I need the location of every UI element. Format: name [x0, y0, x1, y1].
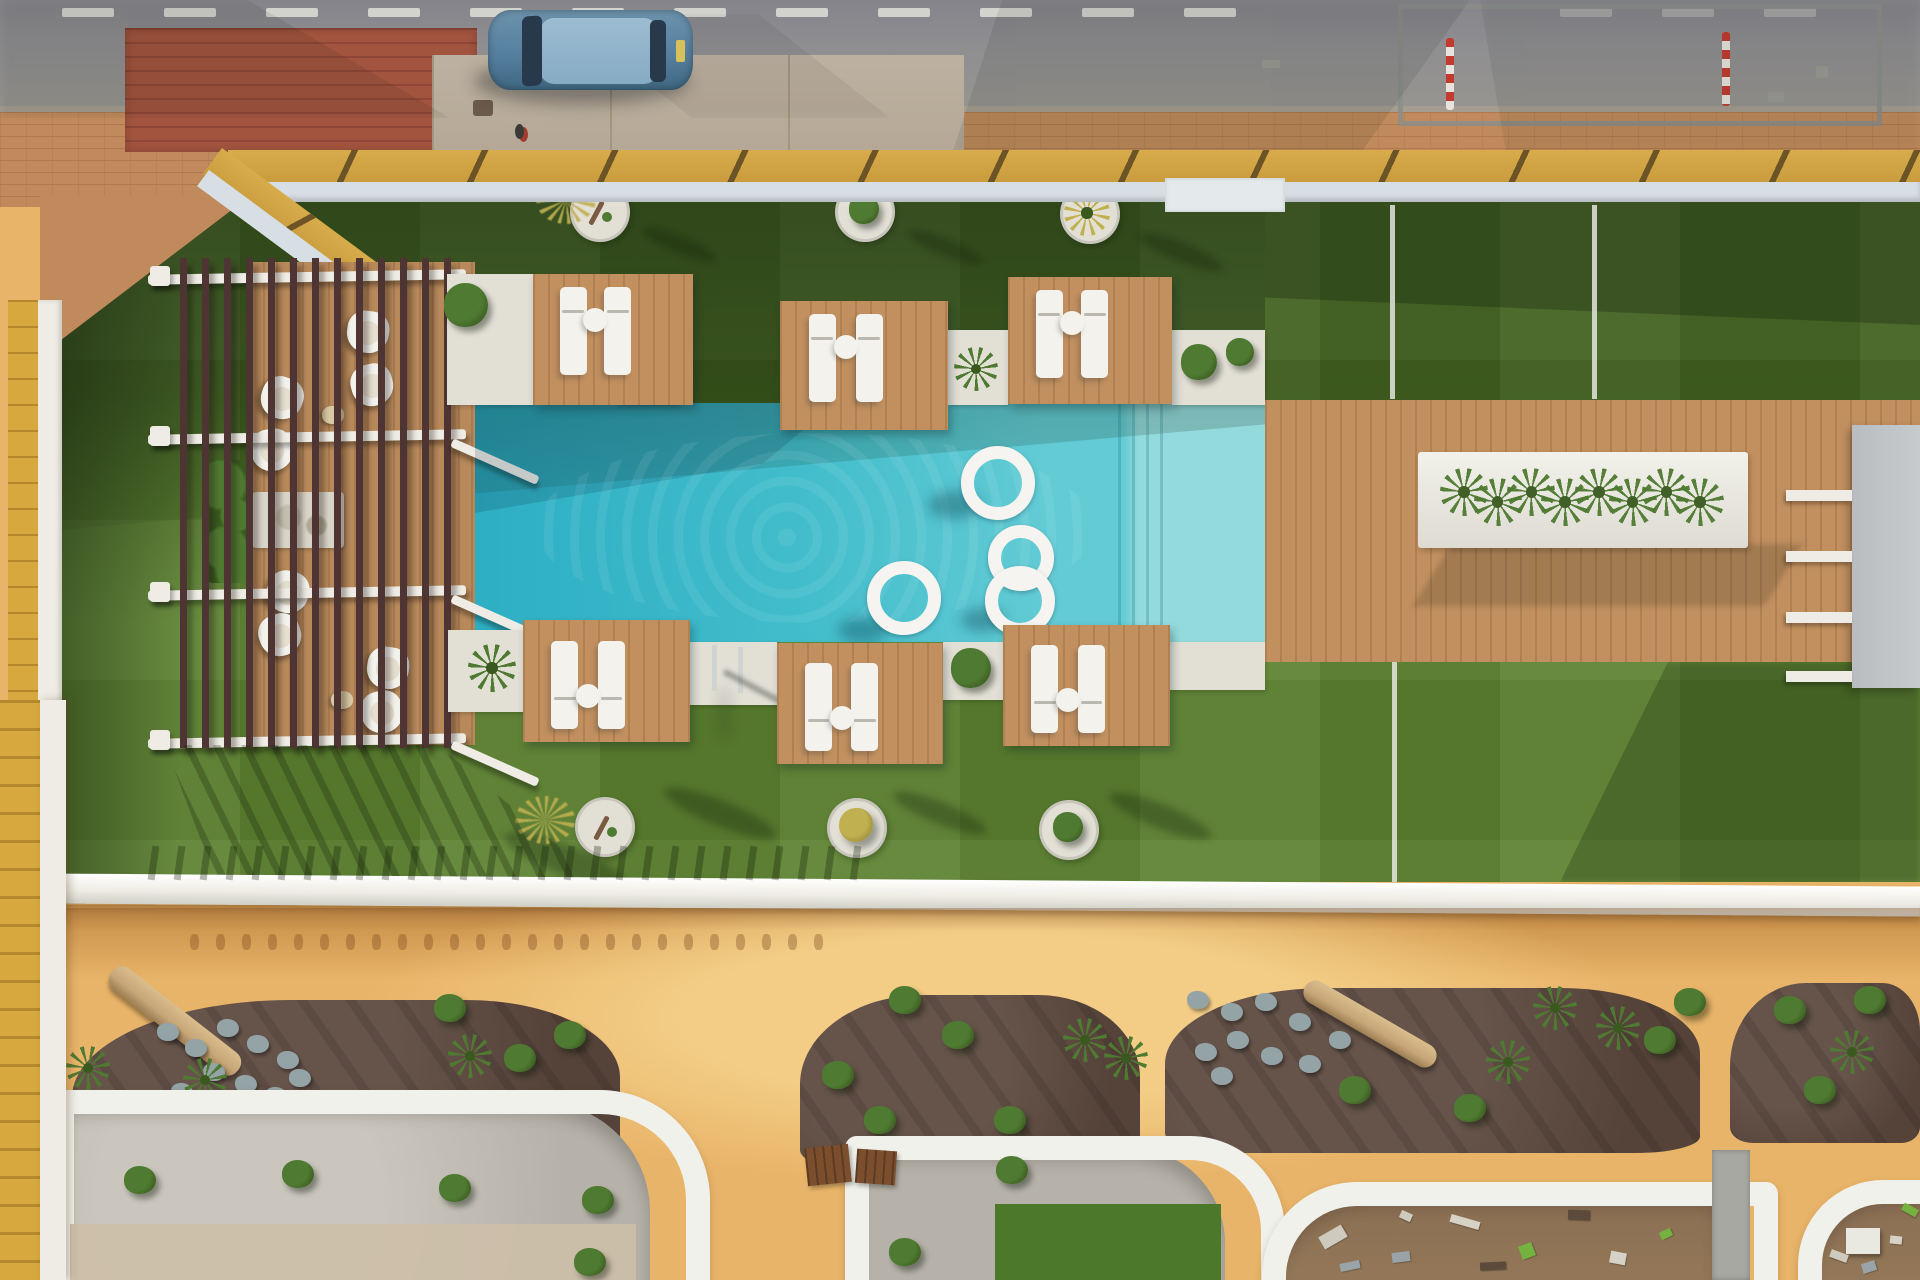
- sun-lounger: [551, 641, 578, 729]
- fence-shadow-dot: [190, 934, 199, 950]
- rock: [1221, 1003, 1243, 1021]
- side-table: [1056, 688, 1080, 712]
- rock: [1289, 1013, 1311, 1031]
- shelf-board: [1786, 551, 1852, 562]
- agave-plant: [1596, 1006, 1640, 1050]
- agave-plant: [1533, 986, 1577, 1030]
- boundary-wall-yellow: [8, 300, 38, 705]
- car-rear-window: [650, 20, 666, 82]
- fence-shadow-dot: [814, 934, 823, 950]
- sprout: [607, 827, 617, 837]
- lounger-crease: [1084, 313, 1106, 316]
- rock: [185, 1039, 207, 1057]
- lounger-crease: [811, 337, 833, 340]
- sprout: [602, 212, 612, 222]
- rock: [217, 1019, 239, 1037]
- palm-plant: [468, 644, 516, 692]
- storage-box: [1846, 1228, 1880, 1254]
- shrub: [1181, 344, 1217, 380]
- sun-lounger: [560, 287, 587, 375]
- rock: [1261, 1047, 1283, 1065]
- walkway-paving: [1170, 642, 1265, 690]
- rock: [1299, 1055, 1321, 1073]
- shrub: [1804, 1076, 1836, 1104]
- shelf-board: [1786, 612, 1852, 623]
- fence-shadow-dot: [268, 934, 277, 950]
- sun-lounger: [598, 641, 625, 729]
- fence-shadow-dot: [606, 934, 615, 950]
- fence-shadow-dot: [580, 934, 589, 950]
- shrub: [951, 648, 991, 688]
- agave-plant: [66, 1046, 110, 1090]
- patio-shrub: [996, 1156, 1028, 1184]
- sun-lounger: [1078, 645, 1105, 733]
- fence-shadow-dot: [242, 934, 251, 950]
- building-wall-yellow: [0, 700, 40, 1280]
- fence-shadow-dot: [554, 934, 563, 950]
- picket-shadow: [746, 846, 758, 881]
- parked-car: [488, 6, 693, 96]
- lawn-joint-line: [1392, 660, 1397, 882]
- sun-lounger: [1081, 290, 1108, 378]
- pergola-slat: [180, 258, 187, 748]
- fence-shadow-dot: [502, 934, 511, 950]
- shrub: [1339, 1076, 1371, 1104]
- tree-shadow: [659, 778, 780, 847]
- pergola-slat: [202, 258, 209, 748]
- cast-shadow: [1480, 0, 1920, 155]
- fence-shadow-dot: [788, 934, 797, 950]
- side-table: [834, 335, 858, 359]
- pool-step-line: [1160, 403, 1163, 642]
- agave-plant: [1063, 1018, 1107, 1062]
- picket-shadow: [824, 846, 836, 881]
- pergola-slat: [290, 258, 297, 748]
- palm-plant: [954, 347, 998, 391]
- rock: [1211, 1067, 1233, 1085]
- lounger-crease: [808, 719, 830, 722]
- cast-shadow: [950, 0, 1470, 160]
- side-table: [576, 684, 600, 708]
- pool-step-line: [1118, 403, 1121, 642]
- perimeter-wall-gate: [1165, 178, 1285, 212]
- pergola-slat: [400, 258, 407, 748]
- shrub: [444, 283, 488, 327]
- patio-pad: [70, 1224, 636, 1280]
- perimeter-wall-cap: [228, 150, 1920, 182]
- shrub: [864, 1106, 896, 1134]
- pedestrian: [515, 124, 524, 139]
- shrub: [1454, 1094, 1486, 1122]
- fence-shadow: [40, 908, 1920, 930]
- sun-lounger: [805, 663, 832, 751]
- pergola-slat: [246, 258, 253, 748]
- patio-lawn: [995, 1204, 1221, 1280]
- patio-shrub: [889, 1238, 921, 1266]
- sun-lounger: [851, 663, 878, 751]
- pool-step-line: [1132, 403, 1135, 642]
- construction-debris: [1568, 1210, 1590, 1221]
- lounger-crease: [854, 719, 876, 722]
- fence-shadow-dot: [320, 934, 329, 950]
- shrub: [1644, 1026, 1676, 1054]
- shrub: [1774, 996, 1806, 1024]
- picket-shadow: [694, 846, 706, 881]
- scene-detail-layer: [0, 0, 1920, 1280]
- shrub: [994, 1106, 1026, 1134]
- pool-float: [961, 446, 1035, 520]
- planting-bed: [1730, 983, 1920, 1143]
- sun-lounger: [604, 287, 631, 375]
- lounger-crease: [1038, 313, 1060, 316]
- garden-gate: [804, 1144, 852, 1186]
- picket-shadow: [642, 846, 654, 881]
- pergola-slat: [422, 258, 429, 748]
- shrub: [942, 1021, 974, 1049]
- shrub: [889, 986, 921, 1014]
- construction-debris: [1480, 1261, 1506, 1270]
- fence-shadow-dot: [294, 934, 303, 950]
- fence-shadow-dot: [346, 934, 355, 950]
- patio-shrub: [439, 1174, 471, 1202]
- agave-plant: [448, 1034, 492, 1078]
- shelf-unit: [1852, 425, 1920, 688]
- rock: [1329, 1031, 1351, 1049]
- fence-shadow-dot: [216, 934, 225, 950]
- rock: [1195, 1043, 1217, 1061]
- lounger-crease: [554, 697, 576, 700]
- fence-shadow-dot: [736, 934, 745, 950]
- garden-gate: [855, 1149, 897, 1186]
- striped-pole: [1446, 38, 1454, 110]
- sun-lounger: [856, 314, 883, 402]
- shrub: [434, 994, 466, 1022]
- side-table: [830, 706, 854, 730]
- picket-shadow: [720, 846, 732, 881]
- concrete-path: [1712, 1150, 1750, 1280]
- shrub: [822, 1061, 854, 1089]
- fence-shadow-dot: [528, 934, 537, 950]
- lounger-crease: [562, 310, 584, 313]
- fence-shadow-dot: [632, 934, 641, 950]
- building-wall-white: [40, 700, 66, 1280]
- shrub: [1053, 812, 1083, 842]
- shrub: [554, 1021, 586, 1049]
- shrub: [1226, 338, 1254, 366]
- pool-ladder: [712, 645, 717, 691]
- pergola-beam-seat: [150, 426, 170, 446]
- picket-shadow: [772, 846, 784, 881]
- lounger-crease: [1081, 701, 1103, 704]
- fence-shadow-dot: [762, 934, 771, 950]
- fence-shadow-dot: [450, 934, 459, 950]
- shrub: [504, 1044, 536, 1072]
- pergola-beam-seat: [150, 582, 170, 602]
- manhole-cover: [473, 100, 493, 116]
- picket-shadow: [798, 846, 810, 881]
- rock: [1255, 993, 1277, 1011]
- gravel-circle-bed: [1039, 800, 1099, 860]
- tree-shadow: [1105, 784, 1216, 847]
- fence-shadow-dot: [684, 934, 693, 950]
- pergola-slat: [268, 258, 275, 748]
- rock: [277, 1051, 299, 1069]
- lane-marking: [368, 8, 420, 17]
- fence-shadow-dot: [476, 934, 485, 950]
- tree-shadow: [890, 784, 991, 842]
- lane-marking: [776, 8, 828, 17]
- outdoor-rug: [252, 492, 344, 548]
- patio-shrub: [124, 1166, 156, 1194]
- lawn-joint-line: [1592, 205, 1597, 399]
- sun-lounger: [1036, 290, 1063, 378]
- patio-shrub: [574, 1248, 606, 1276]
- lawn-shade: [1560, 662, 1920, 882]
- agave-plant: [1830, 1030, 1874, 1074]
- lawn-shade: [60, 250, 180, 890]
- perimeter-wall-inner: [228, 182, 1920, 202]
- construction-debris: [1890, 1235, 1903, 1244]
- pergola-slat: [356, 258, 363, 748]
- sun-lounger: [809, 314, 836, 402]
- shrub: [1854, 986, 1886, 1014]
- lounger-crease: [858, 337, 880, 340]
- planter-plant: [1676, 478, 1724, 526]
- pool-float: [867, 561, 941, 635]
- pergola-slat: [312, 258, 319, 748]
- sun-lounger: [1031, 645, 1058, 733]
- car-roof: [540, 18, 658, 84]
- lawn-joint-line: [1390, 205, 1395, 399]
- fence-shadow-dot: [710, 934, 719, 950]
- rock: [1227, 1031, 1249, 1049]
- fence-shadow-dot: [372, 934, 381, 950]
- shrub: [839, 808, 873, 842]
- agave-plant: [1486, 1040, 1530, 1084]
- shelf-board: [1786, 490, 1852, 501]
- lounger-crease: [1034, 701, 1056, 704]
- shelf-board: [1786, 671, 1852, 682]
- patio-shrub: [582, 1186, 614, 1214]
- side-table: [1060, 311, 1084, 335]
- pool-step-line: [1146, 403, 1149, 642]
- rock: [247, 1035, 269, 1053]
- lounger-crease: [607, 310, 629, 313]
- picket-shadow: [668, 846, 680, 881]
- rock: [1187, 991, 1209, 1009]
- lane-marking: [878, 8, 930, 17]
- rock: [289, 1069, 311, 1087]
- shrub: [1674, 988, 1706, 1016]
- planter-shadow: [1413, 544, 1804, 606]
- pergola-beam-seat: [150, 266, 170, 286]
- rock: [157, 1023, 179, 1041]
- pergola-slat: [378, 258, 385, 748]
- patio-shrub: [282, 1160, 314, 1188]
- car-plate: [676, 40, 685, 62]
- lounger-crease: [601, 697, 623, 700]
- fence-shadow-dot: [424, 934, 433, 950]
- car-windshield: [522, 15, 542, 86]
- pergola-slat: [224, 258, 231, 748]
- pergola-slat: [334, 258, 341, 748]
- aerial-photo-stage: [0, 0, 1920, 1280]
- agave-plant: [1104, 1036, 1148, 1080]
- fence-shadow-dot: [658, 934, 667, 950]
- fence-shadow-dot: [398, 934, 407, 950]
